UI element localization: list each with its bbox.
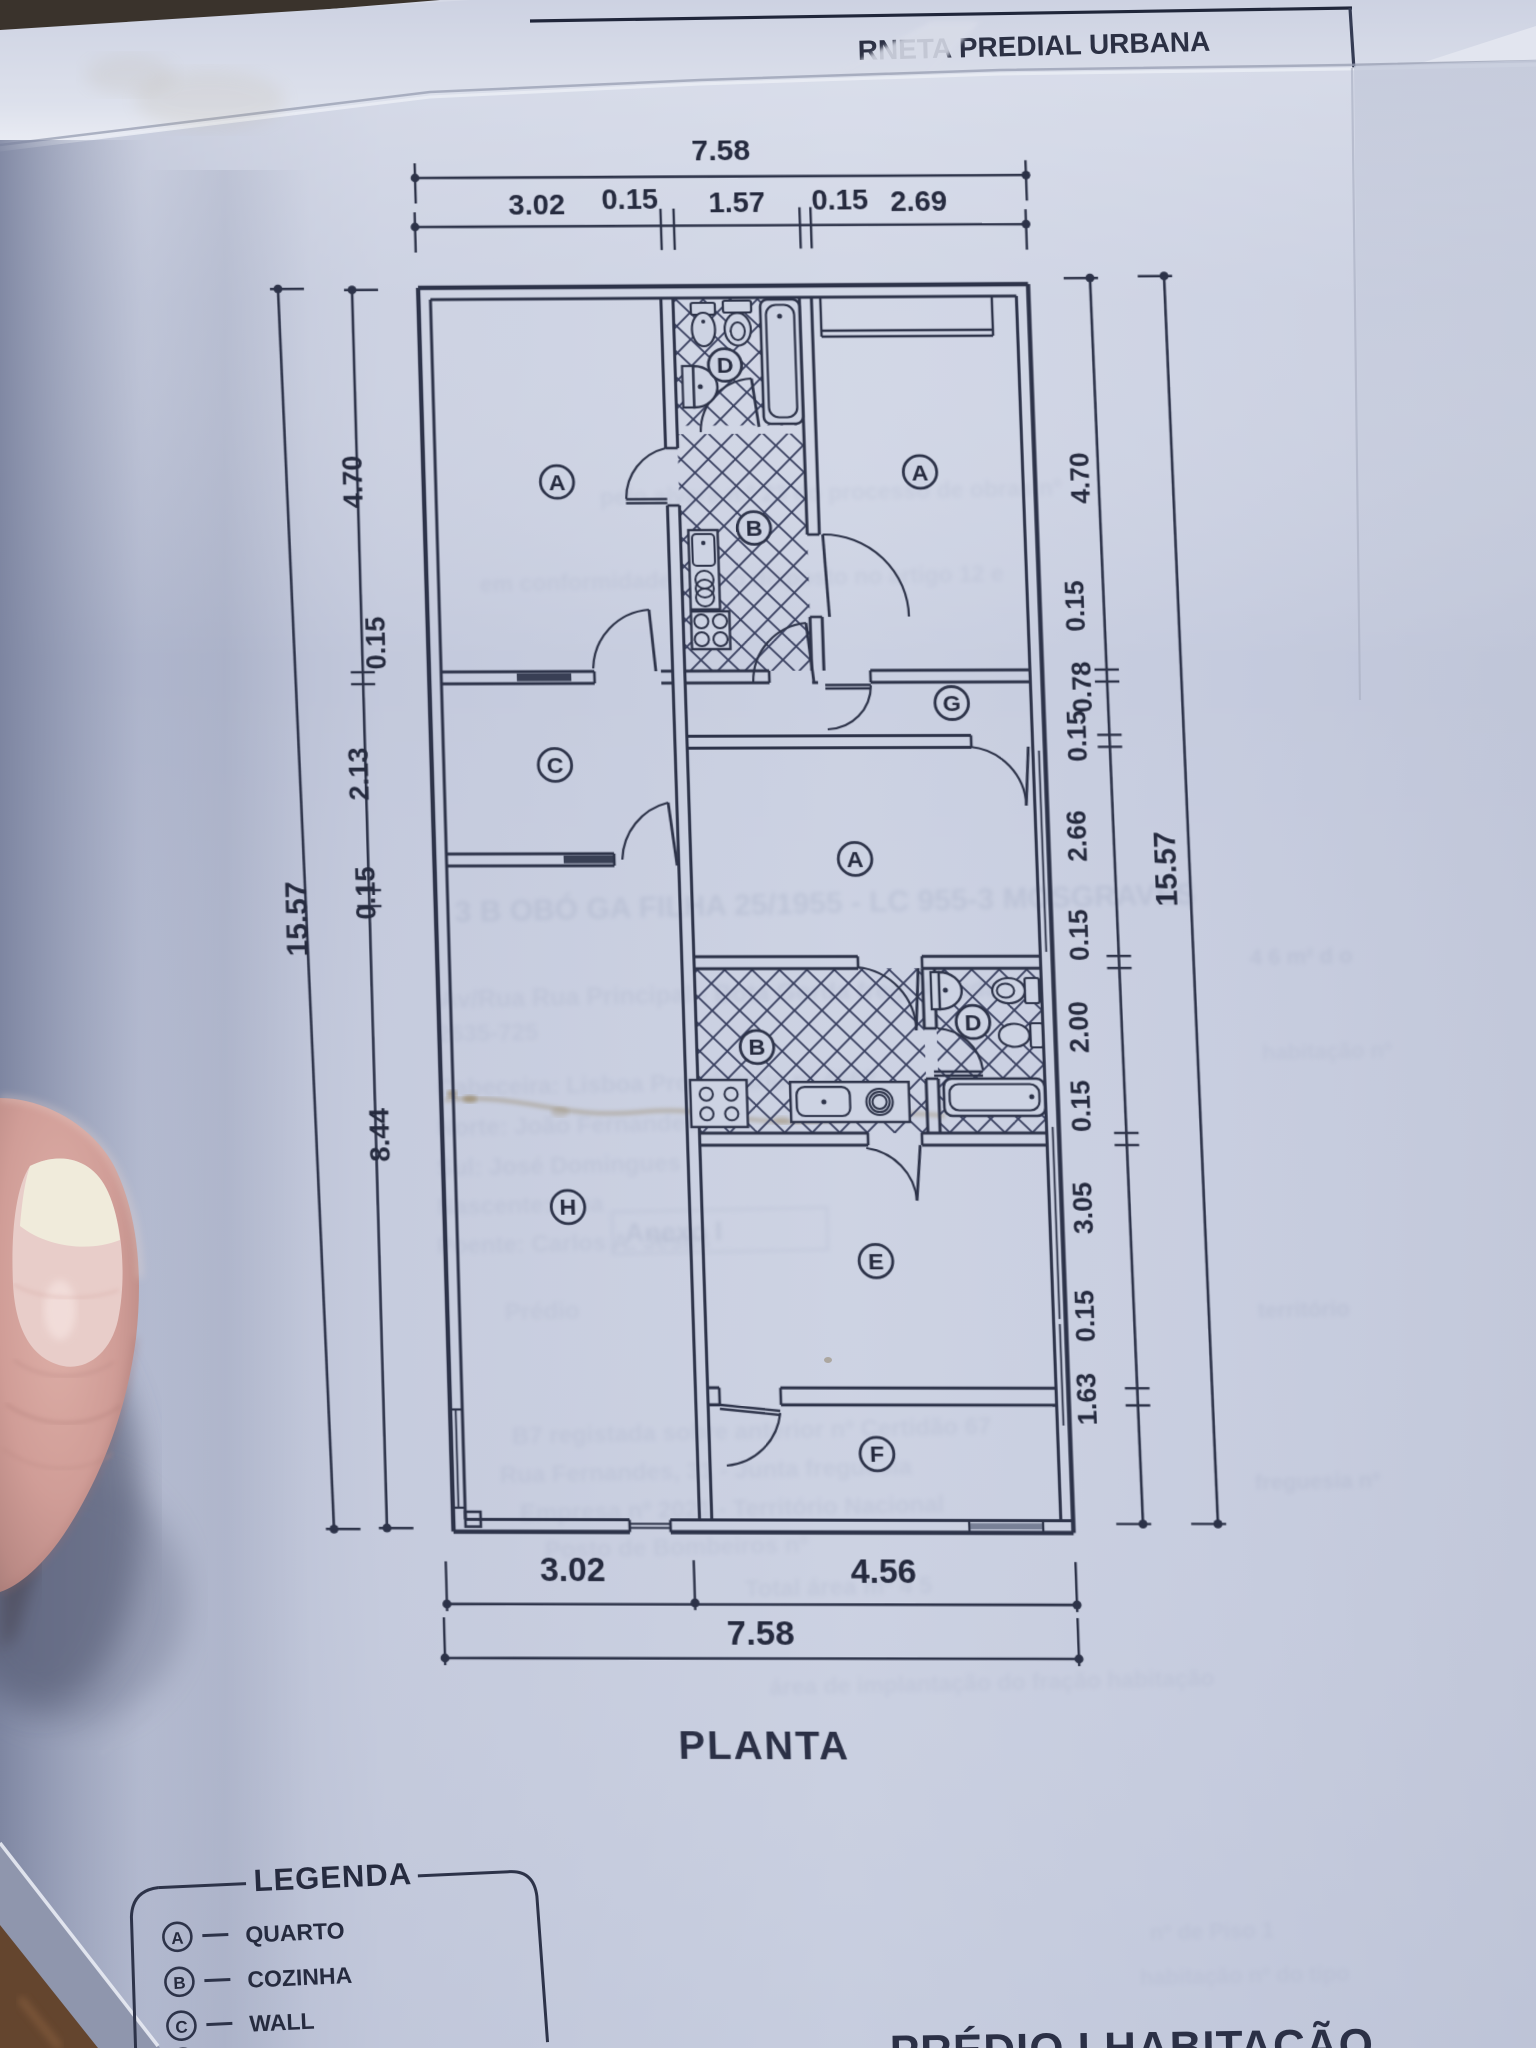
svg-text:0.15: 0.15: [1060, 710, 1093, 762]
svg-text:4.70: 4.70: [1063, 452, 1096, 503]
svg-text:A: A: [548, 469, 565, 495]
svg-text:QUARTO: QUARTO: [245, 1917, 345, 1947]
svg-text:0.15: 0.15: [601, 184, 659, 216]
svg-text:4.70: 4.70: [336, 456, 369, 509]
svg-text:1.63: 1.63: [1070, 1373, 1103, 1425]
svg-text:0.15: 0.15: [1064, 1080, 1097, 1132]
svg-text:A: A: [911, 459, 929, 485]
svg-text:2.66: 2.66: [1060, 810, 1093, 862]
svg-text:G: G: [942, 690, 961, 716]
svg-text:0.15: 0.15: [359, 616, 392, 669]
svg-text:WALL: WALL: [249, 2008, 315, 2037]
svg-text:D: D: [964, 1009, 982, 1035]
svg-text:freguesia nº: freguesia nº: [1255, 1467, 1381, 1495]
svg-text:0.78: 0.78: [1065, 661, 1098, 713]
svg-text:A: A: [846, 846, 864, 872]
svg-text:B: B: [745, 515, 763, 541]
svg-text:habitação nº do tipo: habitação nº do tipo: [1140, 1961, 1350, 1990]
svg-text:habitação nº: habitação nº: [1262, 1037, 1393, 1065]
svg-text:F: F: [869, 1441, 884, 1468]
svg-text:0.15: 0.15: [349, 866, 382, 919]
svg-text:3.05: 3.05: [1066, 1182, 1099, 1234]
svg-text:H: H: [559, 1194, 577, 1220]
svg-text:3.02: 3.02: [508, 189, 566, 221]
svg-text:0.15: 0.15: [1068, 1290, 1101, 1342]
svg-text:8.44: 8.44: [363, 1108, 396, 1162]
svg-text:4.56: 4.56: [850, 1552, 917, 1590]
svg-text:2.13: 2.13: [342, 747, 375, 800]
svg-text:2.69: 2.69: [890, 186, 948, 218]
svg-text:15.57: 15.57: [1148, 831, 1185, 906]
svg-text:7.58: 7.58: [691, 135, 751, 167]
svg-text:B: B: [173, 1973, 186, 1993]
svg-text:0.15: 0.15: [1058, 580, 1091, 631]
svg-text:PLANTA: PLANTA: [678, 1724, 851, 1769]
svg-text:nº de Piso 1: nº de Piso 1: [1150, 1917, 1275, 1945]
svg-text:1.57: 1.57: [708, 187, 766, 219]
svg-text:COZINHA: COZINHA: [247, 1962, 353, 1993]
svg-text:7.58: 7.58: [726, 1615, 795, 1653]
svg-text:C: C: [175, 2017, 188, 2037]
svg-text:D: D: [716, 352, 734, 378]
svg-text:2.00: 2.00: [1062, 1001, 1095, 1053]
svg-text:território: território: [1258, 1296, 1350, 1323]
svg-text:3.02: 3.02: [539, 1550, 606, 1588]
svg-text:0.15: 0.15: [1062, 909, 1095, 961]
svg-text:A: A: [171, 1929, 184, 1949]
svg-text:4 6 m² d o: 4 6 m² d o: [1250, 943, 1353, 970]
svg-text:C: C: [546, 752, 564, 778]
svg-text:B: B: [748, 1034, 766, 1060]
svg-text:15.57: 15.57: [279, 882, 315, 957]
svg-text:0.15: 0.15: [811, 184, 869, 216]
svg-text:E: E: [868, 1248, 885, 1275]
